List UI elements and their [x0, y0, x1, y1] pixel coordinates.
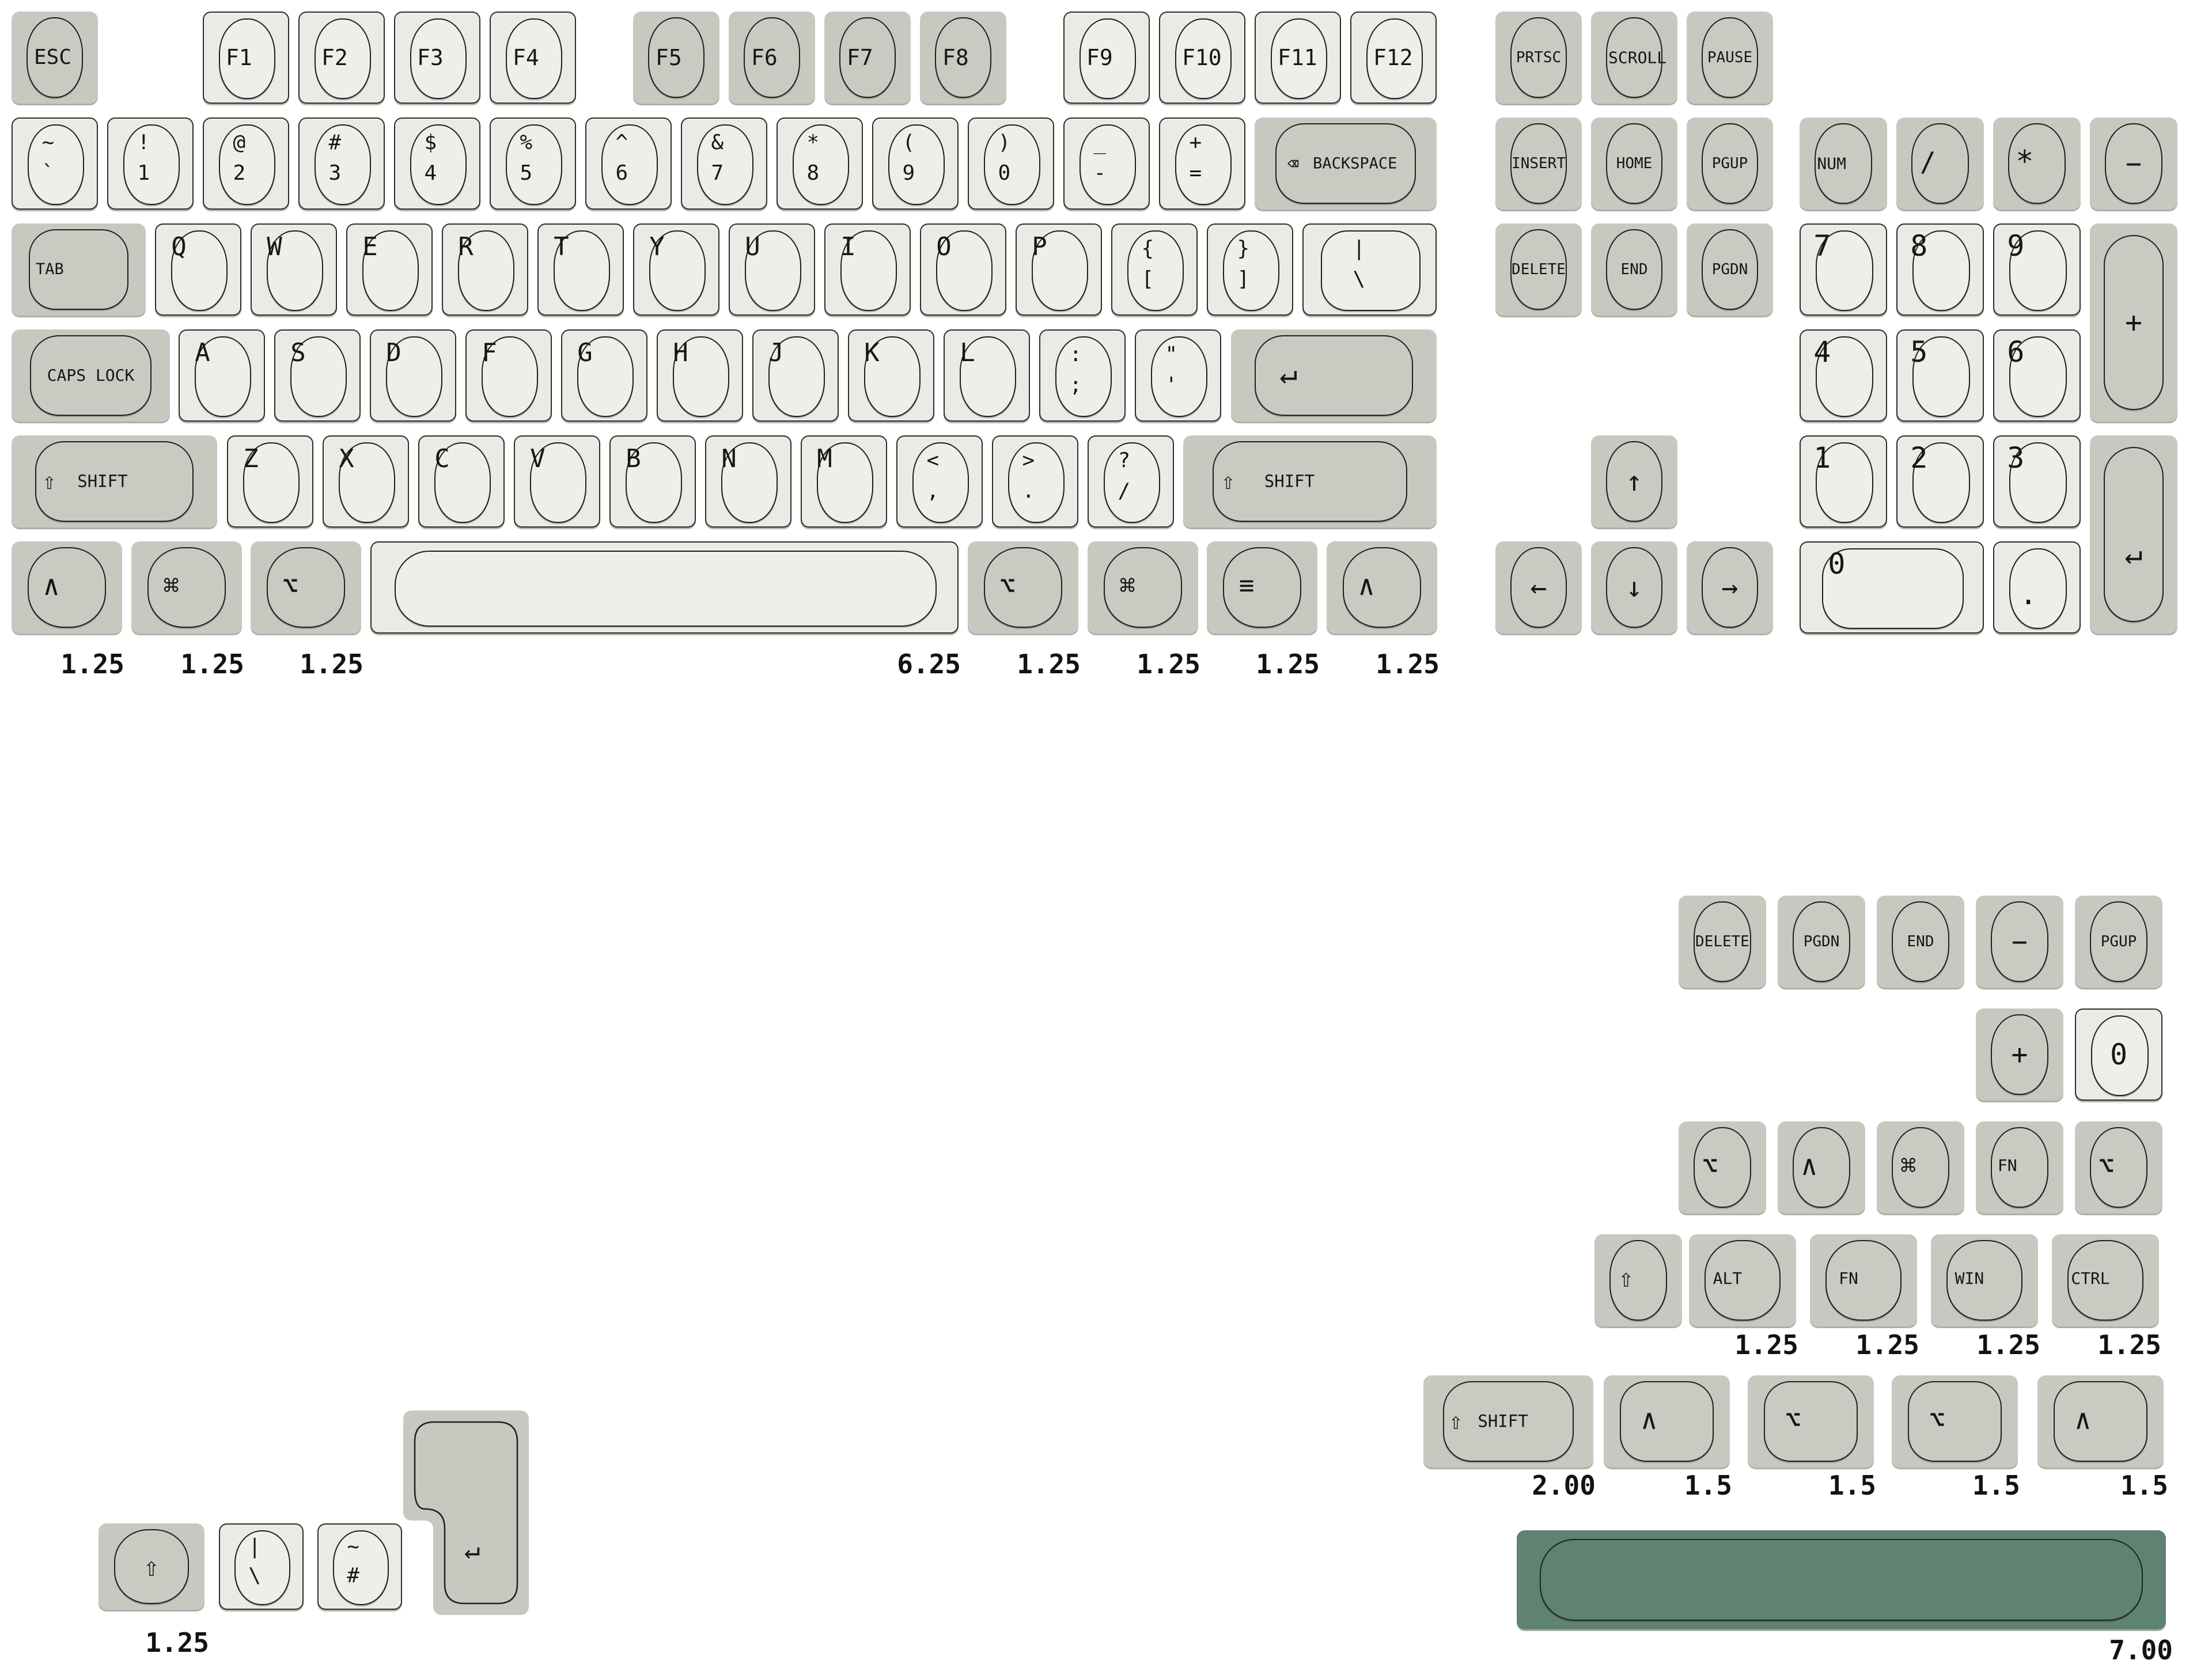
- key-legend: FN: [1998, 1158, 2017, 1174]
- key-legend: F8: [942, 47, 969, 69]
- key-8[interactable]: *8: [777, 117, 863, 210]
- iso-key-shift[interactable]: ⇧: [99, 1523, 204, 1610]
- key-legend: X: [339, 446, 354, 472]
- key-legend: ,: [926, 481, 939, 502]
- key-legend: {: [1141, 238, 1154, 259]
- keycap-top: [315, 124, 371, 205]
- key-legend: BACKSPACE: [1313, 156, 1397, 172]
- key-numpad-0[interactable]: 0: [1800, 541, 1984, 634]
- key-legend: ∧: [43, 572, 60, 600]
- key-legend: 0: [2110, 1040, 2127, 1069]
- key-f12[interactable]: F12: [1350, 12, 1437, 104]
- kit-key-plus[interactable]: +: [1976, 1008, 2063, 1101]
- key-enter[interactable]: ↵: [1231, 329, 1437, 422]
- key-legend: _: [1093, 132, 1106, 153]
- iso-key-enter[interactable]: ↵: [403, 1411, 529, 1615]
- key-legend: +: [1189, 132, 1202, 153]
- key-legend: =: [1189, 163, 1202, 184]
- key-legend: ⌫: [1287, 154, 1298, 173]
- key-legend: ?: [1118, 450, 1130, 471]
- key-legend: 9: [2007, 232, 2024, 260]
- key-legend: @: [233, 132, 245, 153]
- keycap-top: [1008, 442, 1065, 523]
- key-legend: 3: [2007, 443, 2024, 472]
- kit-key-win[interactable]: WIN: [1931, 1234, 2038, 1326]
- key-legend: ALT: [1713, 1271, 1743, 1287]
- key-legend: -: [1093, 163, 1106, 184]
- key-legend: ⌘: [1119, 573, 1135, 599]
- keycap-top: [1764, 1381, 1858, 1462]
- size-label: 1.25: [168, 649, 363, 680]
- key-rbracket[interactable]: }]: [1207, 223, 1293, 316]
- kit-key-ctrl-word[interactable]: CTRL: [2052, 1234, 2159, 1326]
- key-numpad-enter[interactable]: ↵: [2090, 435, 2177, 634]
- keycap-top: [697, 124, 753, 205]
- keycap-top: [1104, 442, 1160, 523]
- kit-key-7u-spacebar[interactable]: [1517, 1530, 2166, 1629]
- key-legend: S: [290, 340, 306, 366]
- key-f6[interactable]: F6: [729, 12, 815, 104]
- key-legend: NUM: [1817, 154, 1846, 173]
- key-legend: J: [768, 340, 784, 366]
- keycap-top: [888, 124, 945, 205]
- key-a[interactable]: A: [179, 329, 265, 422]
- key-legend: F6: [751, 47, 778, 69]
- key-g[interactable]: G: [561, 329, 647, 422]
- key-legend: I: [840, 234, 856, 260]
- key-scroll-lock[interactable]: SCROLL: [1591, 12, 1677, 104]
- size-label: 7.00: [1977, 1635, 2173, 1666]
- key-legend: A: [195, 340, 210, 366]
- key-numpad-dot[interactable]: .: [1993, 541, 2081, 634]
- key-legend: END: [1907, 934, 1934, 949]
- keycap-top: [1055, 336, 1112, 417]
- key-legend: +: [2012, 1041, 2028, 1068]
- key-legend: <: [926, 450, 939, 471]
- key-6[interactable]: ^6: [585, 117, 672, 210]
- key-legend: 3: [328, 163, 341, 184]
- key-legend: ): [998, 132, 1010, 153]
- iso-key-hash[interactable]: ~#: [317, 1523, 402, 1610]
- key-legend: ^: [615, 132, 628, 153]
- key-7[interactable]: &7: [681, 117, 767, 210]
- key-home[interactable]: HOME: [1591, 117, 1677, 210]
- key-legend: E: [362, 234, 378, 260]
- key-z[interactable]: Z: [227, 435, 313, 528]
- key-backslash[interactable]: |\: [1302, 223, 1437, 316]
- key-pgdn[interactable]: PGDN: [1687, 223, 1773, 316]
- keycap-top: [506, 124, 562, 205]
- key-3[interactable]: #3: [298, 117, 385, 210]
- key-legend: INSERT: [1512, 156, 1566, 171]
- key-esc[interactable]: ESC: [12, 12, 98, 104]
- kit-key-delete[interactable]: DELETE: [1679, 896, 1766, 988]
- key-legend: ESC: [34, 47, 71, 68]
- key-capslock[interactable]: CAPS LOCK: [12, 329, 170, 422]
- key-tab[interactable]: TAB: [12, 223, 146, 316]
- key-slash[interactable]: ?/: [1088, 435, 1174, 528]
- key-legend: F10: [1182, 47, 1222, 69]
- key-legend: ⇧: [1449, 1410, 1463, 1433]
- kit-key-opt-1[interactable]: ⌥: [1679, 1121, 1766, 1214]
- key-9[interactable]: (9: [872, 117, 959, 210]
- key-legend: SCROLL: [1608, 48, 1666, 67]
- key-legend: ⌥: [2099, 1152, 2115, 1179]
- key-p[interactable]: P: [1016, 223, 1102, 316]
- key-insert[interactable]: INSERT: [1495, 117, 1582, 210]
- key-grave[interactable]: ~`: [12, 117, 98, 210]
- key-legend: Q: [171, 234, 187, 260]
- key-numpad-numlock[interactable]: NUM: [1800, 117, 1887, 210]
- key-pause[interactable]: PAUSE: [1687, 12, 1773, 104]
- key-legend: PGDN: [1804, 934, 1840, 949]
- key-legend: ↓: [1626, 574, 1643, 601]
- key-legend: 5: [520, 163, 532, 184]
- key-legend: DELETE: [1695, 934, 1749, 949]
- key-legend: DELETE: [1512, 262, 1566, 277]
- key-legend: |: [248, 1537, 261, 1557]
- kit-key-end[interactable]: END: [1877, 896, 1964, 988]
- key-legend: O: [936, 234, 952, 260]
- key-legend: PGUP: [1712, 156, 1748, 171]
- key-numpad-8[interactable]: 8: [1896, 223, 1984, 316]
- key-n[interactable]: N: [705, 435, 791, 528]
- key-legend: ;: [1069, 375, 1082, 396]
- key-numpad-4[interactable]: 4: [1800, 329, 1887, 422]
- key-numpad-9[interactable]: 9: [1993, 223, 2081, 316]
- key-legend: F4: [513, 47, 539, 69]
- key-legend: ~: [41, 132, 54, 153]
- key-b[interactable]: B: [609, 435, 696, 528]
- key-lshift[interactable]: ⇧SHIFT: [12, 435, 217, 528]
- key-legend: F12: [1373, 47, 1413, 69]
- keycap-top: [1321, 230, 1421, 311]
- key-legend: CAPS LOCK: [47, 367, 135, 384]
- key-legend: F: [482, 340, 497, 366]
- key-legend: %: [520, 132, 532, 153]
- key-legend: F11: [1278, 47, 1317, 69]
- key-legend: :: [1069, 344, 1082, 365]
- key-0[interactable]: )0: [968, 117, 1054, 210]
- key-j[interactable]: J: [752, 329, 839, 422]
- key-legend: ': [1165, 375, 1177, 396]
- keycap-top: [28, 547, 106, 628]
- key-legend: ∧: [1358, 572, 1375, 600]
- key-legend: ↵: [2124, 539, 2142, 569]
- key-numpad-7[interactable]: 7: [1800, 223, 1887, 316]
- key-legend: 7: [1813, 232, 1831, 260]
- key-f1[interactable]: F1: [203, 12, 289, 104]
- key-legend: 8: [806, 163, 819, 184]
- key-f5[interactable]: F5: [633, 12, 719, 104]
- key-legend: *: [2016, 147, 2033, 177]
- key-f11[interactable]: F11: [1255, 12, 1341, 104]
- kit-key-ctrl-15-2[interactable]: ∧: [2037, 1375, 2164, 1468]
- key-numpad-add[interactable]: +: [2090, 223, 2177, 422]
- key-legend: PRTSC: [1516, 50, 1561, 65]
- key-legend: U: [745, 234, 760, 260]
- key-legend: #: [328, 132, 341, 153]
- key-numpad-6[interactable]: 6: [1993, 329, 2081, 422]
- key-legend: ⇧: [143, 1553, 160, 1580]
- kit-key-alt[interactable]: ALT: [1689, 1234, 1796, 1326]
- key-f10[interactable]: F10: [1159, 12, 1245, 104]
- key-comma[interactable]: <,: [896, 435, 983, 528]
- key-legend: W: [267, 234, 282, 260]
- key-4[interactable]: $4: [394, 117, 480, 210]
- keycap-top: [123, 124, 180, 205]
- keycap-top: [1223, 547, 1301, 628]
- key-legend: ⌘: [1900, 1152, 1916, 1179]
- key-legend: \: [1353, 269, 1365, 290]
- key-legend: ↵: [1279, 359, 1297, 389]
- key-legend: ⌥: [999, 573, 1016, 599]
- key-r[interactable]: R: [442, 223, 528, 316]
- kit-key-opt-15-2[interactable]: ⌥: [1892, 1375, 2018, 1468]
- keycap-top: [219, 124, 275, 205]
- keycap-top: [1175, 124, 1232, 205]
- key-legend: 6: [615, 163, 628, 184]
- key-legend: PGDN: [1712, 262, 1748, 277]
- keycap-layout-diagram: ESCF1F2F3F4F5F6F7F8F9F10F11F12PRTSCSCROL…: [0, 0, 2212, 1672]
- key-rshift[interactable]: ⇧SHIFT: [1183, 435, 1437, 528]
- keycap-top: [333, 1530, 389, 1605]
- key-legend: C: [434, 446, 450, 472]
- key-e[interactable]: E: [346, 223, 433, 316]
- key-legend: R: [458, 234, 474, 260]
- key-w[interactable]: W: [251, 223, 337, 316]
- key-legend: PGUP: [2101, 934, 2137, 949]
- keycap-top: [1104, 547, 1182, 628]
- key-q[interactable]: Q: [155, 223, 241, 316]
- key-legend: 8: [1910, 232, 1927, 260]
- key-2[interactable]: @2: [203, 117, 289, 210]
- key-c[interactable]: C: [418, 435, 505, 528]
- key-legend: 0: [1828, 549, 1845, 578]
- key-left-arrow[interactable]: ←: [1495, 541, 1582, 634]
- keycap-top: [912, 442, 969, 523]
- key-minus[interactable]: _-: [1063, 117, 1150, 210]
- keycap-top: [1620, 1381, 1714, 1462]
- key-legend: 6: [2007, 338, 2024, 366]
- key-lopt[interactable]: ⌥: [251, 541, 361, 634]
- key-menu[interactable]: ≡: [1207, 541, 1317, 634]
- key-legend: .: [2020, 579, 2037, 609]
- key-numpad-1[interactable]: 1: [1800, 435, 1887, 528]
- key-5[interactable]: %5: [490, 117, 576, 210]
- key-legend: .: [1022, 481, 1035, 502]
- key-legend: M: [817, 446, 832, 472]
- key-legend: F2: [321, 47, 348, 69]
- key-equals[interactable]: +=: [1159, 117, 1245, 210]
- key-s[interactable]: S: [274, 329, 361, 422]
- key-d[interactable]: D: [370, 329, 456, 422]
- key-f3[interactable]: F3: [394, 12, 480, 104]
- key-end[interactable]: END: [1591, 223, 1677, 316]
- key-prtsc[interactable]: PRTSC: [1495, 12, 1582, 104]
- key-legend: N: [721, 446, 737, 472]
- key-legend: F3: [417, 47, 444, 69]
- key-up-arrow[interactable]: ↑: [1591, 435, 1677, 528]
- key-legend: `: [41, 163, 54, 184]
- key-legend: F5: [656, 47, 682, 69]
- key-numpad-divide[interactable]: /: [1896, 117, 1984, 210]
- key-legend: #: [347, 1565, 359, 1586]
- key-t[interactable]: T: [537, 223, 624, 316]
- key-legend: 2: [233, 163, 245, 184]
- key-lbracket[interactable]: {[: [1111, 223, 1198, 316]
- key-numpad-subtract[interactable]: −: [2090, 117, 2177, 210]
- iso-enter-shape: [403, 1411, 529, 1615]
- kit-key-opt-2[interactable]: ⌥: [2075, 1121, 2162, 1214]
- key-legend: F1: [226, 47, 252, 69]
- keycap-top: [984, 124, 1040, 205]
- key-f7[interactable]: F7: [824, 12, 911, 104]
- kit-key-0[interactable]: 0: [2075, 1008, 2162, 1101]
- key-legend: |: [1353, 238, 1365, 259]
- key-legend: HOME: [1616, 156, 1653, 171]
- key-legend: 4: [1813, 338, 1831, 366]
- key-legend: $: [424, 132, 437, 153]
- key-legend: K: [864, 340, 880, 366]
- key-delete[interactable]: DELETE: [1495, 223, 1582, 316]
- key-legend: B: [626, 446, 641, 472]
- key-spacebar[interactable]: [370, 541, 959, 634]
- keycap-top: [1540, 1539, 2143, 1621]
- key-legend: Y: [649, 234, 665, 260]
- kit-key-shift-1u[interactable]: ⇧: [1594, 1234, 1682, 1326]
- key-legend: 1: [137, 163, 150, 184]
- key-pgup[interactable]: PGUP: [1687, 117, 1773, 210]
- keycap-top: [2104, 447, 2164, 622]
- key-legend: →: [1722, 574, 1738, 601]
- key-legend: H: [673, 340, 688, 366]
- keycap-top: [2054, 1381, 2147, 1462]
- keycap-top: [1908, 1381, 2002, 1462]
- key-period[interactable]: >.: [992, 435, 1078, 528]
- key-ropt[interactable]: ⌥: [968, 541, 1078, 634]
- key-f4[interactable]: F4: [490, 12, 576, 104]
- key-u[interactable]: U: [729, 223, 815, 316]
- key-legend: Z: [243, 446, 259, 472]
- key-legend: SHIFT: [77, 473, 127, 490]
- key-o[interactable]: O: [920, 223, 1006, 316]
- key-y[interactable]: Y: [633, 223, 719, 316]
- key-legend: F7: [847, 47, 873, 69]
- key-legend: }: [1237, 238, 1249, 259]
- key-numpad-2[interactable]: 2: [1896, 435, 1984, 528]
- key-numpad-5[interactable]: 5: [1896, 329, 1984, 422]
- key-legend: P: [1032, 234, 1047, 260]
- key-legend: SHIFT: [1478, 1413, 1528, 1430]
- kit-key-pgdn[interactable]: PGDN: [1778, 896, 1865, 988]
- key-legend: /: [1920, 149, 1936, 175]
- key-legend: >: [1022, 450, 1035, 471]
- key-f8[interactable]: F8: [920, 12, 1006, 104]
- key-legend: 0: [998, 163, 1010, 184]
- key-v[interactable]: V: [514, 435, 600, 528]
- keycap-top: [1343, 547, 1421, 628]
- key-legend: D: [386, 340, 402, 366]
- key-legend: 1: [1813, 443, 1831, 472]
- key-legend: ⌥: [1785, 1406, 1801, 1433]
- key-right-arrow[interactable]: →: [1687, 541, 1773, 634]
- key-lcmd[interactable]: ⌘: [131, 541, 242, 634]
- key-semicolon[interactable]: :;: [1039, 329, 1126, 422]
- key-legend: 9: [902, 163, 915, 184]
- kit-key-ctrl-15-1[interactable]: ∧: [1604, 1375, 1730, 1468]
- key-legend: *: [806, 132, 819, 153]
- kit-key-opt-15-1[interactable]: ⌥: [1748, 1375, 1874, 1468]
- key-m[interactable]: M: [801, 435, 887, 528]
- key-k[interactable]: K: [848, 329, 934, 422]
- key-legend: ∧: [2074, 1406, 2091, 1434]
- key-legend: WIN: [1955, 1271, 1984, 1287]
- size-label: 1.5: [1972, 1470, 2168, 1501]
- key-l[interactable]: L: [944, 329, 1030, 422]
- kit-key-ctrl-1[interactable]: ∧: [1778, 1121, 1865, 1214]
- key-legend: ↑: [1626, 468, 1643, 495]
- key-legend: ⇧: [1618, 1266, 1634, 1291]
- kit-key-pgup[interactable]: PGUP: [2075, 896, 2162, 988]
- key-legend: \: [248, 1565, 261, 1586]
- key-f2[interactable]: F2: [298, 12, 385, 104]
- iso-key-pipe[interactable]: |\: [219, 1523, 304, 1610]
- keycap-top: [2009, 548, 2067, 629]
- key-legend: ∧: [1801, 1152, 1817, 1180]
- key-legend: FN: [1839, 1271, 1858, 1287]
- key-1[interactable]: !1: [107, 117, 194, 210]
- key-legend: [: [1141, 269, 1154, 290]
- key-rcmd[interactable]: ⌘: [1088, 541, 1198, 634]
- keycap-top: [234, 1530, 290, 1605]
- key-x[interactable]: X: [323, 435, 409, 528]
- key-legend: −: [2126, 150, 2142, 177]
- key-legend: +: [2125, 308, 2142, 337]
- keycap-top: [1080, 124, 1136, 205]
- key-legend: ~: [347, 1537, 359, 1557]
- kit-key-minus[interactable]: −: [1976, 896, 2063, 988]
- kit-key-fn-2[interactable]: FN: [1810, 1234, 1917, 1326]
- key-legend: ∧: [1641, 1406, 1657, 1434]
- keycap-top: [793, 124, 849, 205]
- key-h[interactable]: H: [657, 329, 743, 422]
- key-rctrl[interactable]: ∧: [1327, 541, 1437, 634]
- key-quote[interactable]: "': [1135, 329, 1221, 422]
- key-legend: ⌘: [163, 573, 179, 599]
- size-label: 1.25: [1244, 649, 1440, 680]
- key-legend: 4: [424, 163, 437, 184]
- key-i[interactable]: I: [824, 223, 911, 316]
- key-numpad-multiply[interactable]: *: [1993, 117, 2081, 210]
- key-legend: F9: [1086, 47, 1113, 69]
- kit-key-fn-1[interactable]: FN: [1976, 1121, 2063, 1214]
- key-down-arrow[interactable]: ↓: [1591, 541, 1677, 634]
- key-lctrl[interactable]: ∧: [12, 541, 122, 634]
- key-legend: PAUSE: [1707, 50, 1752, 65]
- key-f[interactable]: F: [465, 329, 552, 422]
- keycap-top: [395, 551, 937, 627]
- key-legend: ⌥: [1702, 1152, 1718, 1179]
- key-legend: !: [137, 132, 150, 153]
- keycap-top: [1223, 230, 1279, 311]
- key-legend: V: [530, 446, 546, 472]
- key-numpad-3[interactable]: 3: [1993, 435, 2081, 528]
- key-f9[interactable]: F9: [1063, 12, 1150, 104]
- kit-key-shift-2u[interactable]: ⇧SHIFT: [1423, 1375, 1593, 1468]
- kit-key-cmd[interactable]: ⌘: [1877, 1121, 1964, 1214]
- key-backspace[interactable]: ⌫BACKSPACE: [1255, 117, 1437, 210]
